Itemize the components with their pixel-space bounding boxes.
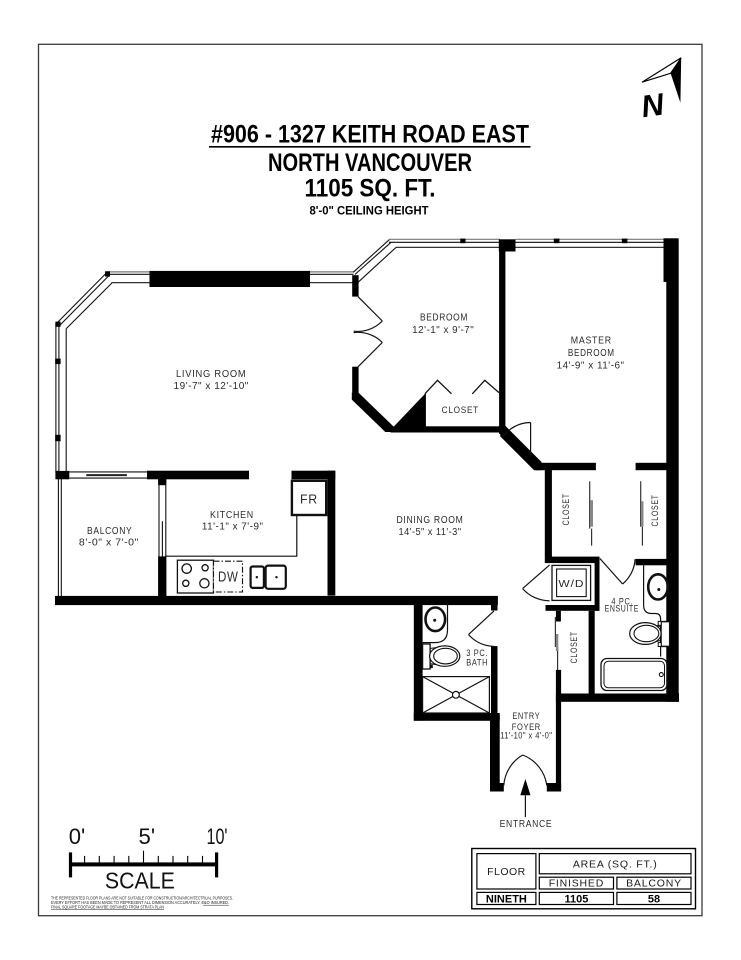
svg-text:FLOOR: FLOOR — [487, 866, 526, 878]
svg-text:ENTRY: ENTRY — [512, 710, 540, 721]
svg-text:14'-9" x 11'-6": 14'-9" x 11'-6" — [557, 360, 625, 371]
svg-text:0': 0' — [69, 824, 86, 849]
svg-text:10': 10' — [207, 824, 228, 849]
svg-text:ENTRANCE: ENTRANCE — [500, 819, 553, 830]
svg-text:FINISHED: FINISHED — [549, 878, 604, 890]
svg-text:SCALE: SCALE — [105, 867, 175, 893]
svg-text:AREA (SQ. FT.): AREA (SQ. FT.) — [573, 858, 658, 870]
svg-text:NORTH VANCOUVER: NORTH VANCOUVER — [268, 149, 472, 177]
svg-text:LIVING ROOM: LIVING ROOM — [176, 369, 247, 380]
svg-text:8'-0" x 7'-0": 8'-0" x 7'-0" — [79, 538, 139, 549]
svg-text:BEDROOM: BEDROOM — [420, 312, 468, 323]
svg-text:CLOSET: CLOSET — [442, 405, 479, 415]
svg-text:11'-10" x 4'-0": 11'-10" x 4'-0" — [500, 731, 552, 741]
svg-text:KITCHEN: KITCHEN — [210, 510, 254, 521]
svg-text:DW: DW — [218, 569, 239, 585]
svg-text:#906 - 1327 KEITH ROAD EAST: #906 - 1327 KEITH ROAD EAST — [211, 121, 529, 149]
svg-text:BALCONY: BALCONY — [87, 526, 132, 537]
svg-text:BATH: BATH — [466, 657, 488, 667]
svg-text:BALCONY: BALCONY — [626, 878, 682, 890]
svg-text:FR: FR — [300, 492, 318, 507]
svg-text:12'-1" x 9'-7": 12'-1" x 9'-7" — [412, 325, 474, 336]
svg-text:19'-7" x 12'-10": 19'-7" x 12'-10" — [174, 381, 249, 392]
svg-text:ENSUITE: ENSUITE — [605, 604, 639, 614]
svg-text:NINETH: NINETH — [486, 893, 527, 905]
svg-text:FINAL SQUARE FOOTAGE MAYBE OBT: FINAL SQUARE FOOTAGE MAYBE OBTAINED FROM… — [51, 905, 164, 910]
svg-text:MASTER: MASTER — [571, 336, 612, 347]
svg-text:58: 58 — [648, 893, 660, 905]
svg-text:5': 5' — [139, 824, 156, 849]
svg-text:CLOSET: CLOSET — [569, 631, 579, 663]
svg-text:BEDROOM: BEDROOM — [568, 348, 615, 359]
svg-text:CLOSET: CLOSET — [650, 494, 660, 526]
svg-text:W/D: W/D — [558, 578, 584, 590]
svg-text:DINING ROOM: DINING ROOM — [397, 515, 464, 526]
svg-text:1105 SQ. FT.: 1105 SQ. FT. — [305, 174, 436, 202]
svg-text:8'-0" CEILING HEIGHT: 8'-0" CEILING HEIGHT — [310, 206, 429, 218]
svg-text:11'-1" x 7'-9": 11'-1" x 7'-9" — [202, 521, 264, 532]
svg-text:1105: 1105 — [564, 893, 588, 905]
svg-text:14'-5" x 11'-3": 14'-5" x 11'-3" — [399, 527, 462, 538]
svg-text:CLOSET: CLOSET — [561, 493, 571, 525]
